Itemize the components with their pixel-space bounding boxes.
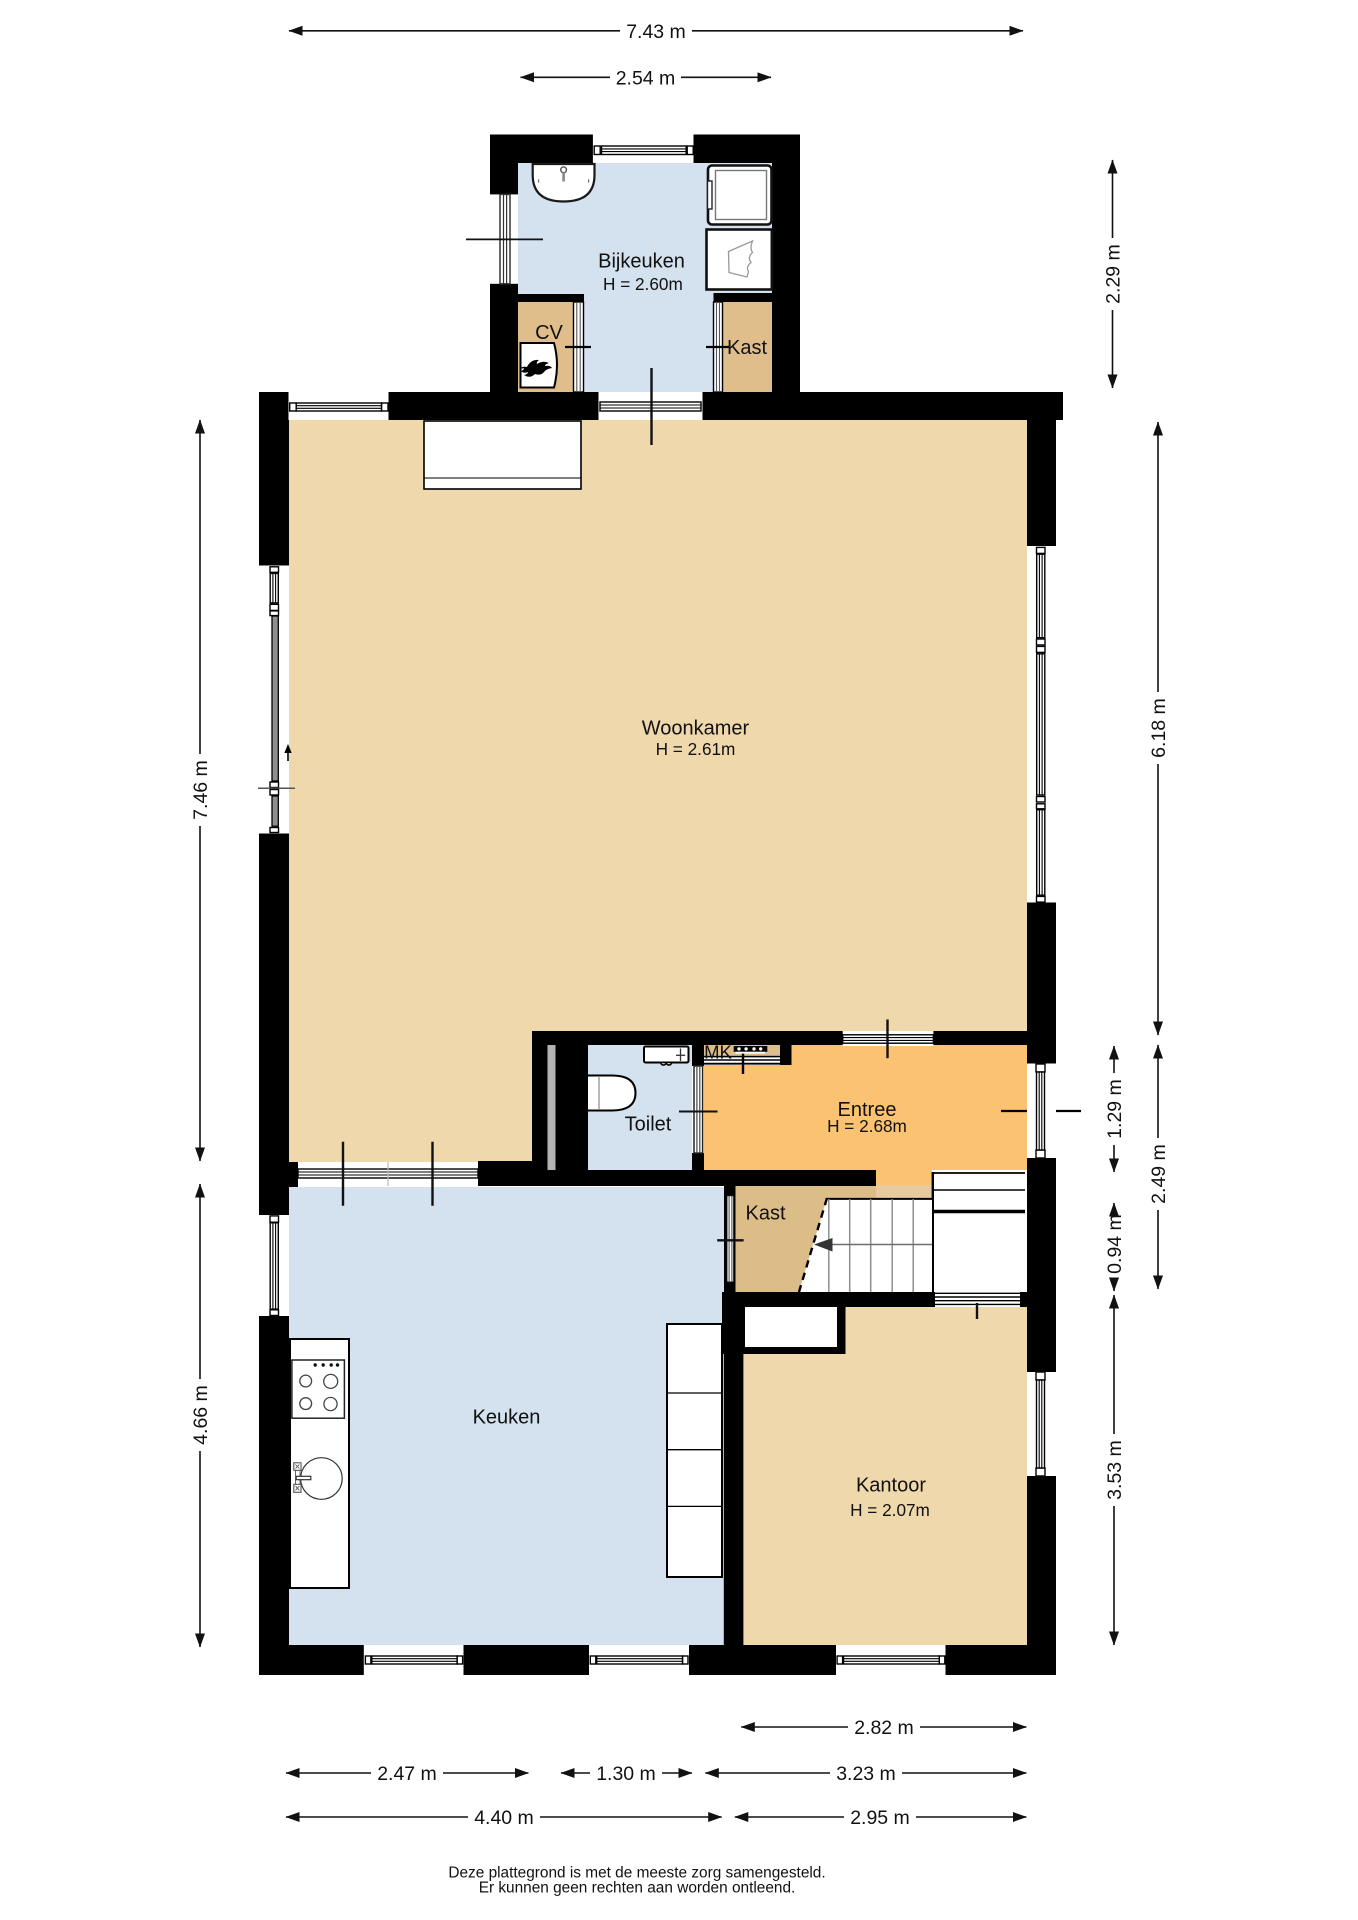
svg-text:H = 2.68m: H = 2.68m	[827, 1116, 907, 1136]
svg-text:1.29 m: 1.29 m	[1104, 1079, 1126, 1139]
svg-text:H = 2.60m: H = 2.60m	[603, 274, 683, 294]
svg-text:2.47 m: 2.47 m	[377, 1763, 437, 1785]
svg-text:7.43 m: 7.43 m	[626, 21, 686, 43]
svg-text:CV: CV	[535, 322, 563, 344]
svg-text:2.54 m: 2.54 m	[616, 67, 676, 89]
svg-text:MK: MK	[704, 1042, 732, 1063]
svg-text:3.23 m: 3.23 m	[836, 1763, 896, 1785]
svg-text:4.66 m: 4.66 m	[190, 1385, 212, 1445]
svg-text:6.18 m: 6.18 m	[1148, 698, 1170, 758]
svg-text:2.49 m: 2.49 m	[1148, 1144, 1170, 1204]
svg-text:1.30 m: 1.30 m	[596, 1763, 656, 1785]
svg-text:0.94 m: 0.94 m	[1104, 1214, 1126, 1274]
svg-text:H = 2.07m: H = 2.07m	[850, 1500, 930, 1520]
svg-text:Kast: Kast	[745, 1203, 785, 1225]
svg-text:7.46 m: 7.46 m	[190, 760, 212, 820]
svg-text:Kast: Kast	[727, 337, 767, 359]
svg-text:2.82 m: 2.82 m	[854, 1717, 914, 1739]
svg-text:Keuken: Keuken	[473, 1406, 541, 1428]
svg-text:4.40 m: 4.40 m	[474, 1807, 534, 1829]
svg-text:2.95 m: 2.95 m	[850, 1807, 910, 1829]
svg-text:Woonkamer: Woonkamer	[642, 717, 750, 739]
svg-text:Kantoor: Kantoor	[856, 1475, 926, 1497]
svg-text:Er kunnen geen rechten aan wor: Er kunnen geen rechten aan worden ontlee…	[479, 1880, 796, 1897]
svg-text:H = 2.61m: H = 2.61m	[656, 739, 736, 759]
svg-text:2.29 m: 2.29 m	[1103, 244, 1125, 304]
svg-text:Toilet: Toilet	[625, 1114, 672, 1136]
svg-text:Bijkeuken: Bijkeuken	[598, 251, 685, 273]
svg-text:3.53 m: 3.53 m	[1104, 1440, 1126, 1500]
